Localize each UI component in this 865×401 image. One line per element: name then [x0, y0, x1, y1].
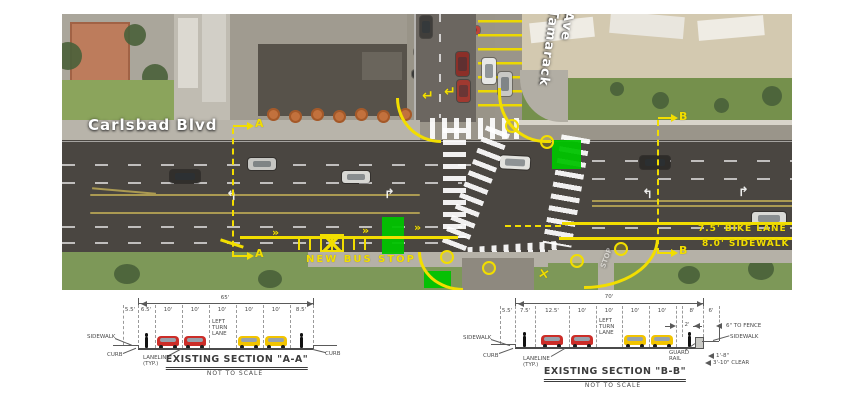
- vehicle-red: [184, 336, 206, 346]
- road-surface-line: [515, 347, 701, 349]
- curb-left-callout: CURB: [483, 353, 498, 359]
- tree: [714, 98, 729, 113]
- section-a-bottom-arrowhead: [247, 252, 254, 260]
- section-a-bottom-tick: [233, 255, 248, 257]
- vehicle: [640, 156, 670, 169]
- lane-boundary: [569, 306, 570, 347]
- lane-boundary: [682, 306, 683, 337]
- leader-line: [123, 348, 136, 354]
- pedestrian-figure: [521, 332, 527, 347]
- tree: [124, 24, 146, 46]
- sidewalk-line-left: [113, 345, 138, 346]
- lane-boundary: [138, 305, 139, 348]
- patio-umbrella: [355, 108, 368, 121]
- vehicle: [170, 170, 200, 183]
- curb-step-left: [138, 345, 139, 349]
- overall-dim-line: [515, 303, 703, 304]
- patio-umbrella: [289, 110, 302, 123]
- lane-boundary: [236, 305, 237, 348]
- highlight-area-ne: [552, 140, 581, 169]
- main-street-label: Carlsbad Blvd: [88, 116, 218, 134]
- patio-umbrella: [377, 110, 390, 123]
- tree: [678, 266, 700, 284]
- vehicle-yellow: [238, 336, 260, 346]
- section-a-label-bottom: A: [255, 247, 264, 260]
- sidewalk-callout: SIDEWALK: [463, 335, 491, 341]
- lane-dim: 10': [218, 307, 227, 313]
- bike-lane-label: 7.5' BIKE LANE: [698, 224, 787, 234]
- tree: [652, 92, 669, 109]
- dim-arrow: [307, 301, 316, 307]
- lane-dim: 10': [658, 308, 667, 314]
- roof-detail: [362, 52, 402, 80]
- lane-boundary: [649, 306, 650, 347]
- lane-boundary: [703, 306, 704, 337]
- section-bb-diagram: 70' 5.5' 7.5' 12.5' 10' 10' 10' 10' 8' 6…: [455, 290, 810, 400]
- lane-dim: 10': [245, 307, 254, 313]
- north-curb-line: [62, 141, 792, 142]
- lane-boundary: [263, 305, 264, 348]
- bike-chevron: »: [272, 226, 279, 239]
- tree: [762, 86, 782, 106]
- dim-arrow: [697, 301, 706, 307]
- lane-boundary: [313, 305, 314, 348]
- lane-line: [592, 178, 792, 180]
- to-fence-callout: 6" TO FENCE: [726, 323, 761, 329]
- dim-arrow: [691, 323, 700, 329]
- bus-shelter-symbol: [320, 234, 344, 252]
- section-b-top-tick: [658, 117, 672, 119]
- pedestrian-figure: [143, 333, 149, 348]
- vehicle-red: [571, 335, 593, 345]
- bike-chevron: »: [362, 224, 369, 237]
- sidewalk-callout: SIDEWALK: [87, 334, 115, 340]
- traffic-exhibit: ↵ ↵: [0, 0, 865, 401]
- dim-arrow: [670, 323, 679, 329]
- section-b-label-top: B: [679, 110, 687, 123]
- vehicle-yellow: [651, 335, 673, 345]
- sidewalk-label: 8.0' SIDEWALK: [702, 239, 789, 249]
- lane-dim: 5.5': [125, 307, 135, 313]
- overall-dim-label: 65': [221, 295, 230, 301]
- front-lawn: [62, 80, 174, 120]
- sidewalk-line-right: [313, 345, 337, 346]
- aerial-photo: ↵ ↵: [62, 14, 792, 290]
- section-aa-not-to-scale: NOT TO SCALE: [207, 370, 263, 377]
- yellow-left-turn-arrow: ↵: [444, 84, 456, 100]
- section-aa-title: EXISTING SECTION "A-A": [166, 354, 308, 370]
- overall-dim-label: 70': [605, 294, 614, 300]
- lane-boundary: [123, 305, 124, 345]
- center-line: [90, 194, 420, 196]
- guard-rail-callout: GUARD RAIL: [669, 350, 689, 362]
- lane-dim: 10': [272, 307, 281, 313]
- ramp-bulb: [540, 135, 554, 149]
- lane-dim: 10': [578, 308, 587, 314]
- curb-left-callout: CURB: [107, 352, 122, 358]
- leader-line: [313, 349, 326, 353]
- left-turn-lane-label: LEFT TURN LANE: [212, 319, 227, 337]
- section-b-bottom-arrowhead: [671, 249, 678, 257]
- section-bb-not-to-scale: NOT TO SCALE: [585, 382, 641, 389]
- patio-umbrella: [311, 108, 324, 121]
- queued-car: [457, 80, 470, 102]
- lane-dim: 6.5': [141, 307, 151, 313]
- white-roof-building: [178, 18, 198, 88]
- section-b-label-bottom: B: [679, 244, 687, 257]
- lane-boundary: [209, 305, 210, 348]
- tamarack-south-leg: [462, 258, 534, 290]
- lane-dim: 10': [605, 308, 614, 314]
- ramp-bulb: [570, 254, 584, 268]
- queued-car: [456, 52, 469, 76]
- dim-arrow: [713, 323, 722, 329]
- patio-umbrella: [333, 110, 346, 123]
- lane-boundary: [155, 305, 156, 348]
- dim-arrow: [702, 360, 711, 366]
- lane-boundary: [622, 306, 623, 347]
- lane-dim: 7.5': [520, 308, 530, 314]
- lane-dim: 12.5': [545, 308, 559, 314]
- patio-umbrella: [267, 108, 280, 121]
- section-line-b: [657, 120, 659, 254]
- section-aa-diagram: 65' 5.5' 6.5' 10' 10' 10' 10' 10' 8.5' L…: [85, 293, 355, 398]
- tree: [258, 270, 282, 288]
- ramp-bulb: [505, 119, 519, 133]
- clear-a-callout: 1'-8": [716, 353, 729, 359]
- section-b-top-arrowhead: [671, 114, 678, 122]
- lane-dim: 5.5': [502, 308, 512, 314]
- lane-dim: 8': [689, 308, 694, 314]
- sidewalk-right-callout: SIDEWALK: [730, 334, 758, 340]
- two-ft-label: 2': [684, 322, 689, 328]
- vehicle-yellow: [624, 335, 646, 345]
- guard-rail-post: [695, 337, 704, 349]
- white-turn-arrow: ↱: [384, 188, 395, 201]
- lane-dim: 10': [631, 308, 640, 314]
- white-roof-building: [202, 14, 226, 102]
- lane-dim: 10': [164, 307, 173, 313]
- section-line-a: [232, 128, 234, 257]
- car: [482, 58, 496, 84]
- section-b-bottom-tick: [658, 252, 672, 254]
- lane-line: [62, 182, 462, 184]
- overall-dim-line: [138, 303, 313, 304]
- leader-line: [713, 335, 730, 341]
- ramp-bulb: [614, 242, 628, 256]
- white-turn-arrow: ↱: [738, 186, 749, 199]
- center-line: [90, 212, 420, 214]
- lane-boundary: [290, 305, 291, 348]
- ramp-bulb: [482, 261, 496, 275]
- lane-line: [592, 160, 792, 162]
- vehicle: [500, 155, 531, 170]
- section-bb-title: EXISTING SECTION "B-B": [544, 366, 686, 382]
- dim-arrow: [705, 353, 714, 359]
- lane-dim: 8.5': [296, 307, 306, 313]
- dim-arrow: [515, 301, 524, 307]
- section-a-top-tick: [233, 125, 248, 127]
- vehicle-red: [541, 335, 563, 345]
- lane-boundary: [500, 306, 501, 344]
- vehicle: [248, 158, 276, 170]
- white-turn-arrow: ↰: [642, 188, 653, 201]
- cross-street-line2: Ave: [557, 14, 576, 42]
- raised-sidewalk-line: [702, 341, 719, 342]
- vehicle: [342, 171, 370, 183]
- curb-step-left: [515, 344, 516, 348]
- lane-boundary: [515, 306, 516, 347]
- leader-line: [499, 348, 513, 354]
- curb-right-callout: CURB: [325, 351, 340, 357]
- leader-line: [551, 348, 565, 357]
- road-surface-line: [138, 348, 313, 350]
- section-a-label-top: A: [255, 117, 264, 130]
- tree: [610, 82, 624, 96]
- lane-boundary: [535, 306, 536, 347]
- lane-boundary: [182, 305, 183, 348]
- queued-car: [420, 16, 432, 38]
- ramp-bulb: [440, 250, 454, 264]
- left-turn-lane-label: LEFT TURN LANE: [599, 318, 614, 336]
- tree: [114, 264, 140, 284]
- lane-dim: 10': [191, 307, 200, 313]
- pedestrian-figure: [298, 333, 304, 348]
- clear-b-callout: 3'-10" CLEAR: [713, 360, 749, 366]
- lane-boundary: [596, 306, 597, 347]
- bike-lane-dash: [505, 225, 561, 227]
- new-bus-stop-label: NEW BUS STOP: [306, 254, 416, 265]
- vehicle-yellow: [265, 336, 287, 346]
- center-line: [592, 205, 792, 207]
- center-line: [592, 200, 792, 202]
- bike-chevron: »: [414, 221, 421, 234]
- lane-dim: 6': [708, 308, 713, 314]
- section-a-top-arrowhead: [247, 122, 254, 130]
- vehicle-red: [157, 336, 179, 346]
